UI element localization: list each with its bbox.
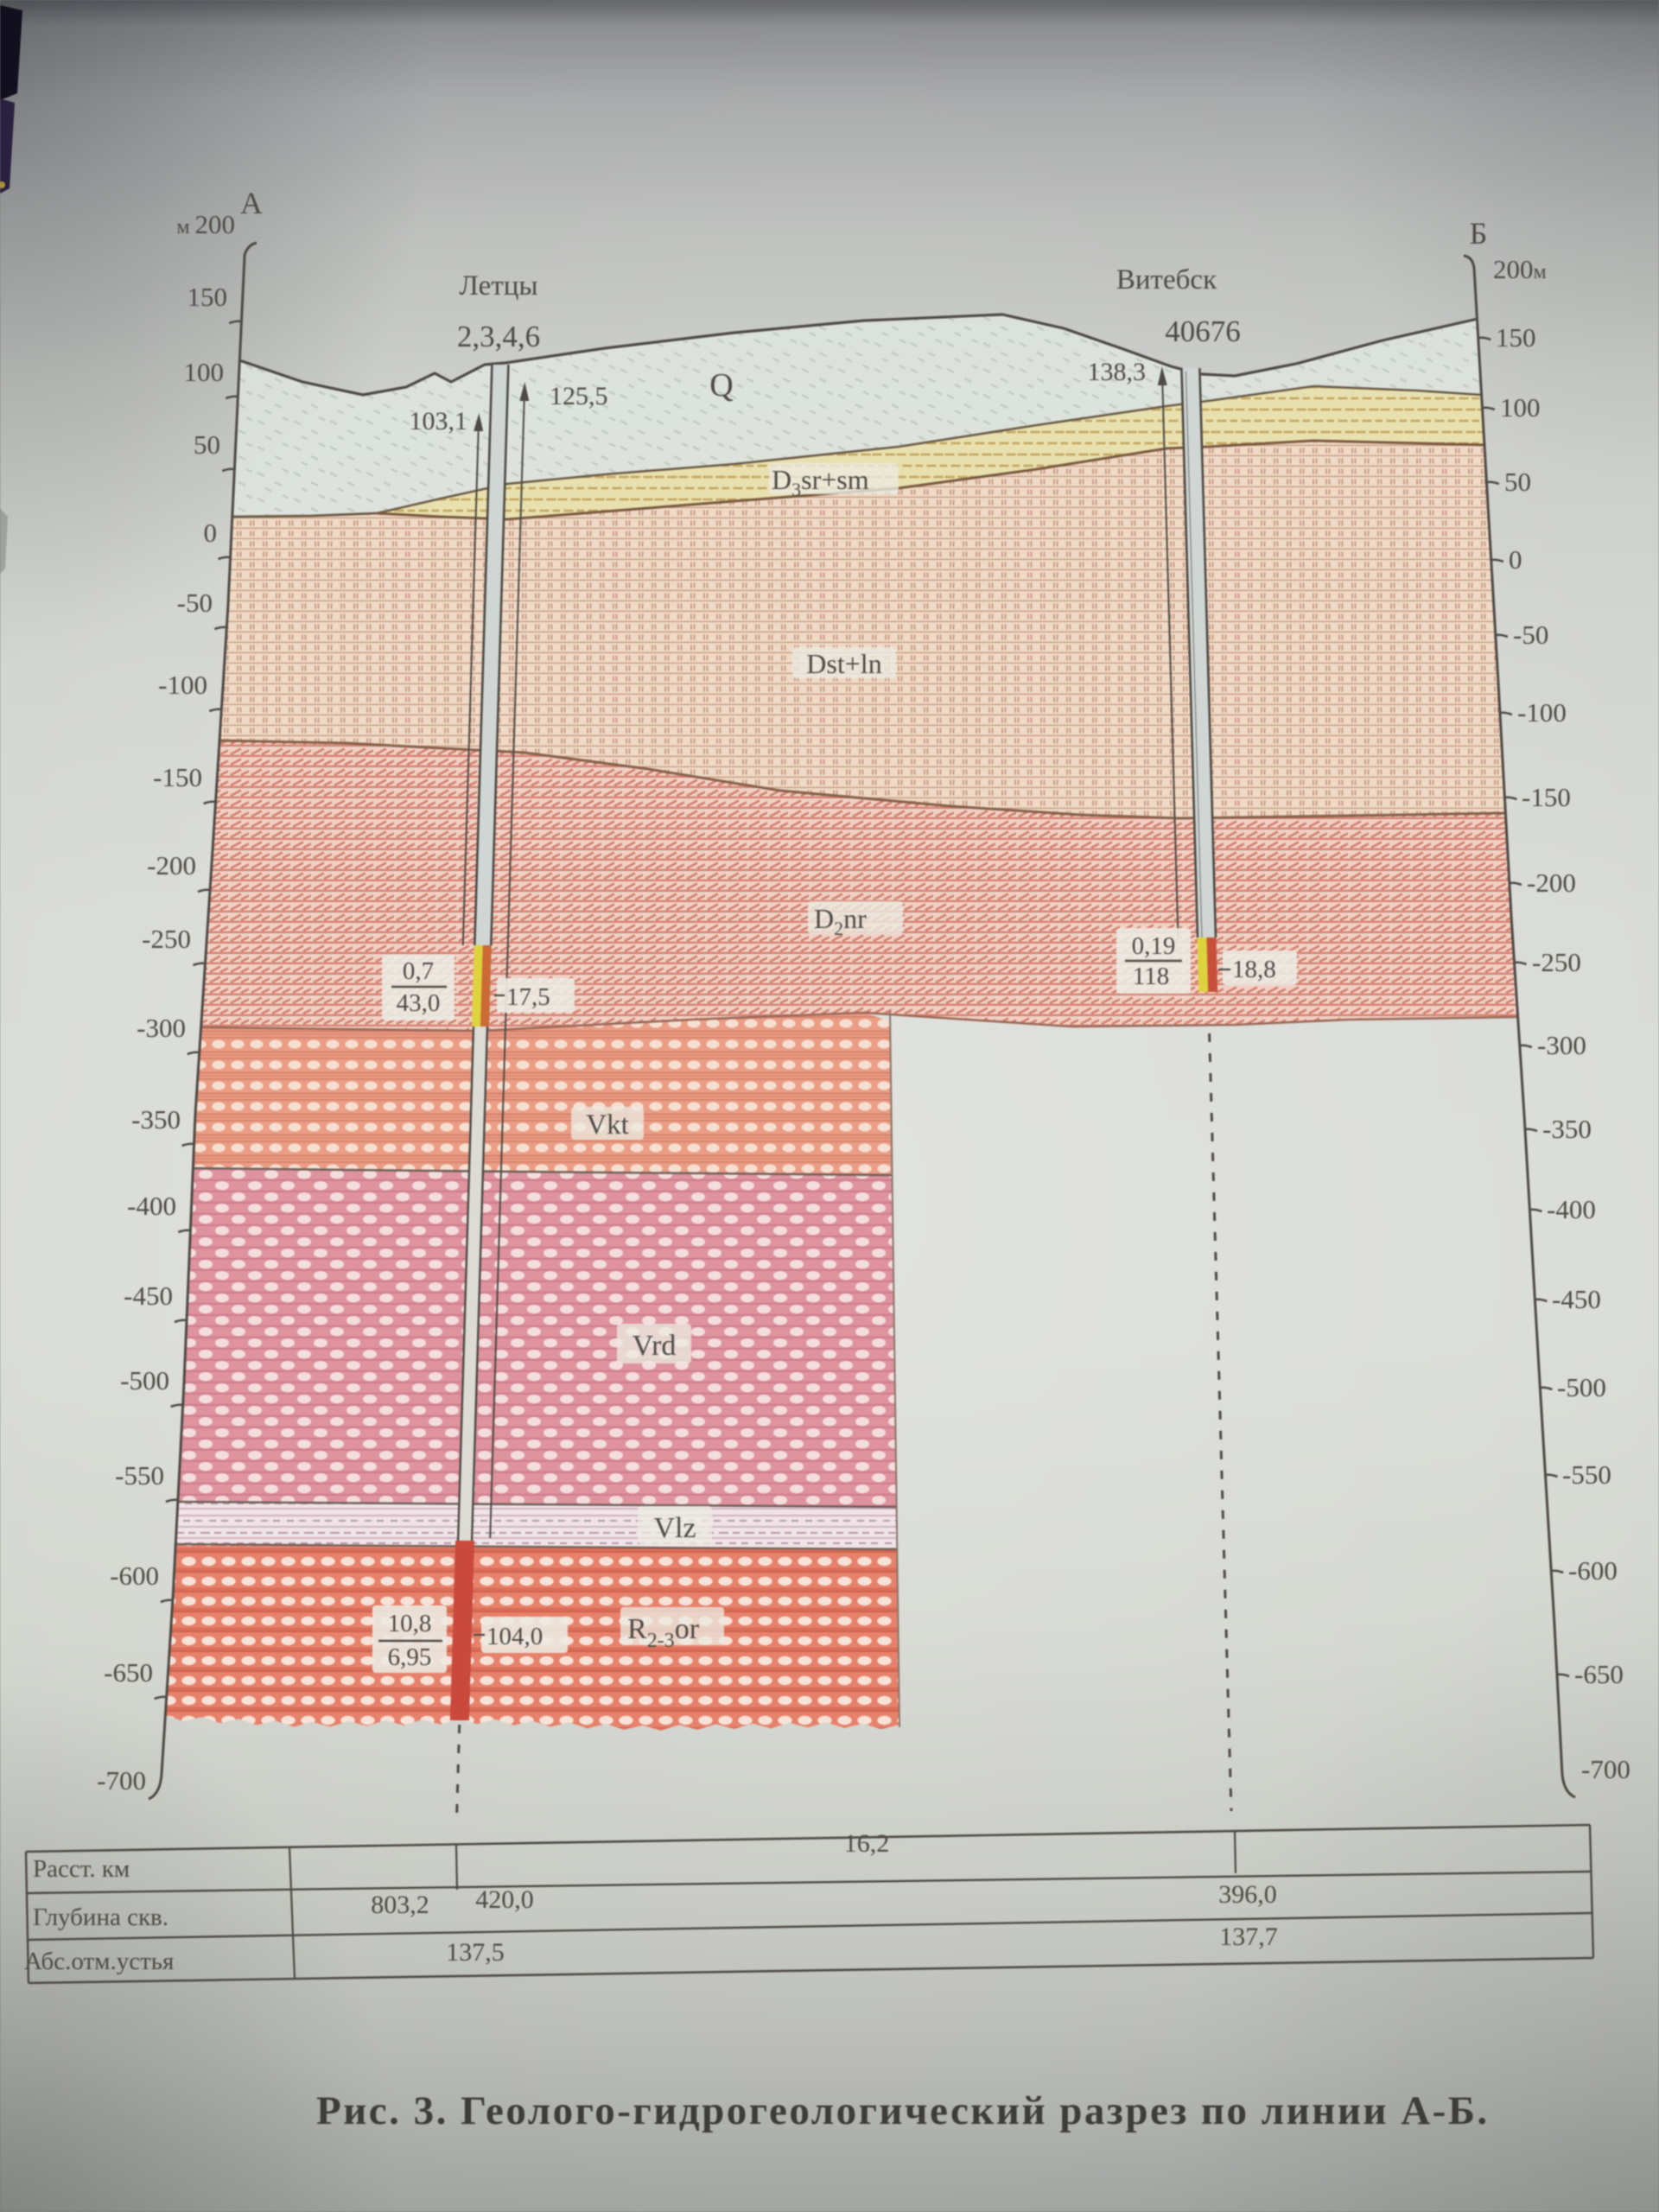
svg-text:0: 0 xyxy=(204,518,218,548)
svg-text:Рис. 3. Геолого-гидрогеологич: Рис. 3. Геолого-гидрогеологический разре… xyxy=(316,2088,1490,2133)
svg-text:104,0: 104,0 xyxy=(486,1623,543,1650)
svg-text:Q: Q xyxy=(709,367,733,404)
svg-text:50: 50 xyxy=(1504,467,1531,497)
svg-text:Vkt: Vkt xyxy=(586,1109,629,1141)
svg-text:118: 118 xyxy=(1133,963,1169,990)
svg-text:Витебск: Витебск xyxy=(1116,264,1217,296)
svg-text:-350: -350 xyxy=(1542,1114,1592,1144)
svg-text:137,5: 137,5 xyxy=(446,1938,505,1967)
svg-text:0,19: 0,19 xyxy=(1132,932,1176,960)
svg-text:-300: -300 xyxy=(1537,1030,1586,1060)
svg-text:-200: -200 xyxy=(147,850,196,880)
svg-text:Vrd: Vrd xyxy=(632,1330,677,1362)
svg-text:396,0: 396,0 xyxy=(1218,1880,1277,1909)
svg-text:Расст. км: Расст. км xyxy=(33,1855,130,1883)
svg-text:17,5: 17,5 xyxy=(506,983,550,1011)
svg-text:0,7: 0,7 xyxy=(403,957,434,985)
svg-text:150: 150 xyxy=(1496,322,1536,353)
svg-text:2,3,4,6: 2,3,4,6 xyxy=(457,320,540,353)
svg-text:-400: -400 xyxy=(1547,1194,1596,1224)
svg-text:50: 50 xyxy=(194,429,220,460)
svg-text:150: 150 xyxy=(188,282,228,312)
svg-text:-550: -550 xyxy=(115,1460,164,1491)
svg-text:-650: -650 xyxy=(104,1657,153,1688)
svg-text:-550: -550 xyxy=(1562,1459,1611,1490)
svg-text:138,3: 138,3 xyxy=(1088,358,1147,386)
svg-text:103,1: 103,1 xyxy=(410,407,468,435)
svg-text:16,2: 16,2 xyxy=(844,1829,890,1858)
svg-text:-50: -50 xyxy=(177,588,213,618)
svg-text:А: А xyxy=(240,186,263,220)
svg-text:-150: -150 xyxy=(1522,782,1571,812)
svg-text:-450: -450 xyxy=(1552,1284,1601,1314)
svg-text:43,0: 43,0 xyxy=(397,989,441,1017)
svg-text:-250: -250 xyxy=(1532,947,1581,977)
svg-text:-200: -200 xyxy=(1527,868,1576,898)
svg-text:100: 100 xyxy=(1500,392,1541,423)
svg-text:-500: -500 xyxy=(120,1365,169,1395)
svg-text:125,5: 125,5 xyxy=(550,382,608,410)
svg-text:-50: -50 xyxy=(1513,620,1548,650)
svg-text:-150: -150 xyxy=(153,762,202,792)
svg-text:-450: -450 xyxy=(124,1281,173,1311)
svg-text:-600: -600 xyxy=(110,1560,159,1591)
svg-text:-100: -100 xyxy=(1517,697,1567,728)
svg-text:Летцы: Летцы xyxy=(459,270,537,302)
svg-text:-350: -350 xyxy=(131,1104,181,1135)
svg-text:0: 0 xyxy=(1509,544,1522,575)
svg-text:420,0: 420,0 xyxy=(475,1885,534,1914)
svg-text:-500: -500 xyxy=(1557,1372,1606,1402)
svg-text:803,2: 803,2 xyxy=(371,1891,429,1919)
svg-text:Абс.отм.устья: Абс.отм.устья xyxy=(24,1948,174,1975)
svg-text:Б: Б xyxy=(1470,216,1488,251)
svg-text:-600: -600 xyxy=(1568,1555,1618,1586)
svg-text:6,95: 6,95 xyxy=(388,1643,432,1671)
svg-text:D3sr+sm: D3sr+sm xyxy=(772,464,869,500)
svg-text:-700: -700 xyxy=(1581,1754,1630,1784)
svg-text:40676: 40676 xyxy=(1165,315,1241,348)
svg-text:10,8: 10,8 xyxy=(388,1610,432,1637)
svg-text:-700: -700 xyxy=(97,1765,146,1796)
svg-text:-400: -400 xyxy=(127,1191,176,1221)
svg-text:137,7: 137,7 xyxy=(1219,1923,1278,1951)
svg-text:Dst+ln: Dst+ln xyxy=(806,648,881,679)
svg-text:-650: -650 xyxy=(1574,1659,1624,1689)
svg-text:-300: -300 xyxy=(137,1013,186,1043)
svg-text:Глубина скв.: Глубина скв. xyxy=(33,1904,168,1931)
svg-text:18,8: 18,8 xyxy=(1232,956,1276,983)
svg-text:Vlz: Vlz xyxy=(653,1512,696,1544)
svg-text:-100: -100 xyxy=(158,670,207,700)
svg-text:100: 100 xyxy=(184,357,225,387)
svg-text:-250: -250 xyxy=(142,924,191,954)
